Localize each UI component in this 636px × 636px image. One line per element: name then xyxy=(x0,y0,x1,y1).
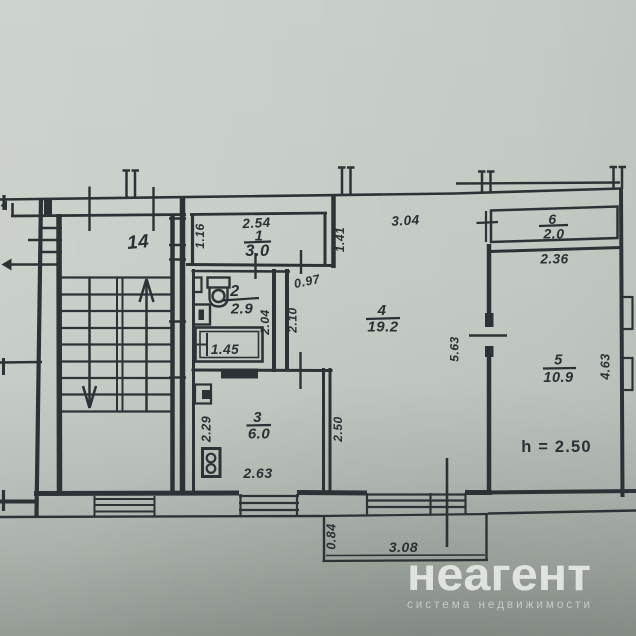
svg-text:0.97: 0.97 xyxy=(293,272,322,291)
svg-text:h = 2.50: h = 2.50 xyxy=(521,438,592,456)
svg-text:2.0: 2.0 xyxy=(543,226,565,242)
svg-text:система недвижимости: система недвижимости xyxy=(407,597,593,611)
svg-text:2.36: 2.36 xyxy=(539,252,568,267)
svg-text:1.45: 1.45 xyxy=(211,342,239,357)
svg-text:2.9: 2.9 xyxy=(230,301,254,318)
svg-text:2.04: 2.04 xyxy=(258,309,272,335)
svg-text:5.63: 5.63 xyxy=(448,336,462,361)
svg-text:1.41: 1.41 xyxy=(333,227,347,252)
svg-text:3.04: 3.04 xyxy=(391,212,420,228)
svg-text:4.63: 4.63 xyxy=(599,353,613,380)
svg-text:2.63: 2.63 xyxy=(242,465,272,481)
svg-text:19.2: 19.2 xyxy=(367,319,398,336)
svg-text:0.84: 0.84 xyxy=(325,523,339,549)
svg-text:3.0: 3.0 xyxy=(245,242,270,260)
svg-text:10.9: 10.9 xyxy=(543,370,573,386)
svg-text:неагент: неагент xyxy=(407,548,591,600)
svg-text:4: 4 xyxy=(377,302,387,319)
svg-text:2.50: 2.50 xyxy=(331,416,345,442)
svg-text:6.0: 6.0 xyxy=(248,426,271,443)
svg-text:5: 5 xyxy=(554,353,563,369)
svg-text:2: 2 xyxy=(229,283,239,300)
svg-text:2.29: 2.29 xyxy=(200,416,214,443)
svg-text:1.16: 1.16 xyxy=(193,223,207,248)
svg-text:3: 3 xyxy=(253,409,262,426)
svg-text:14: 14 xyxy=(126,231,150,254)
svg-text:2.10: 2.10 xyxy=(286,307,300,333)
